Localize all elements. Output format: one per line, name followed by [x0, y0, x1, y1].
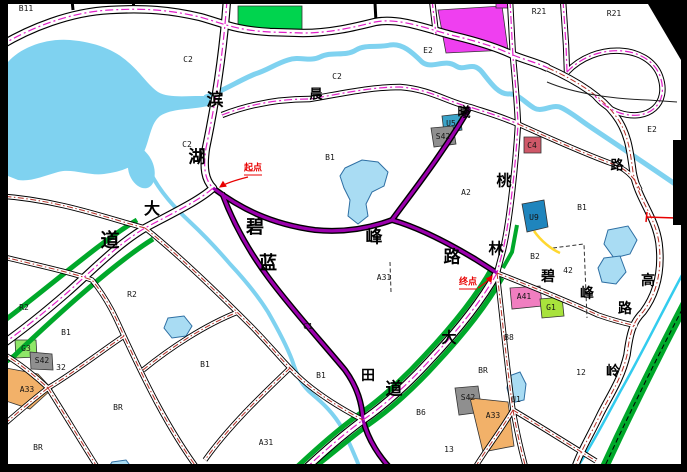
parcel-label: C1 [303, 323, 313, 331]
parcel-label: 13 [444, 446, 454, 454]
road-name-char: 路 [618, 303, 632, 317]
parcel-label: R2 [19, 304, 29, 312]
parcel-label: U1 [511, 396, 521, 404]
road-name-char: 林 [488, 243, 503, 258]
parcel-label: R2 [127, 291, 137, 299]
road-name-char: 碧 [541, 271, 555, 285]
parcel-label: B2 [530, 253, 540, 261]
parcel-label: B1 [577, 204, 587, 212]
parcel-label: B8 [504, 334, 514, 342]
parcel-label: A2 [461, 189, 471, 197]
parcel-label: B1 [200, 361, 210, 369]
parcel-label: G3 [21, 345, 31, 353]
parcel-label: E2 [423, 47, 433, 55]
planning-map[interactable]: 滨湖大道晨曦碧蓝峰路桃林大田道碧峰路高岭路 B11C2C2E2R21R21E2C… [0, 0, 687, 472]
parcel-label: A31 [377, 274, 391, 282]
road-name-char: 湖 [189, 149, 206, 166]
parcel-label: U5 [446, 120, 456, 128]
parcel-label: C4 [527, 142, 537, 150]
parcel-label: B1 [61, 329, 71, 337]
road-name-char: 道 [100, 232, 119, 251]
road-name-char: 峰 [580, 288, 594, 302]
road-name-char: 碧 [246, 218, 264, 236]
road-name-char: 曦 [457, 106, 470, 119]
parcel-label: BR [478, 367, 488, 375]
parcel-label: A31 [259, 439, 273, 447]
route-start-label: 起点 [244, 165, 262, 176]
parcel-label: R21 [532, 8, 546, 16]
parcel-label: C2 [182, 141, 192, 149]
parcel-label: G1 [546, 304, 556, 312]
road-name-char: 蓝 [259, 254, 277, 272]
road-name-char: 田 [361, 370, 375, 384]
parcel-label: 42 [563, 267, 573, 275]
parcel-label: BR [113, 404, 123, 412]
parcel-label: BR [33, 444, 43, 452]
road-name-char: 高 [641, 275, 655, 289]
road-name-char: 大 [144, 202, 160, 218]
road-name-char: 峰 [366, 229, 383, 246]
road-name-char: 路 [444, 249, 461, 266]
parcel-label: B1 [316, 372, 326, 380]
parcel-label: C2 [332, 73, 342, 81]
parcel-label: B11 [19, 5, 33, 13]
road-name-char: 滨 [207, 92, 224, 109]
road-name-char: 路 [610, 159, 623, 172]
parcel-label: R21 [607, 10, 621, 18]
parcel-label: B1 [325, 154, 335, 162]
parcel-label: U9 [529, 214, 539, 222]
route-end-label: 终点 [459, 279, 477, 290]
parcel-label: E2 [647, 126, 657, 134]
parcel-label: S42 [436, 133, 450, 141]
parcel-label: A33 [20, 386, 34, 394]
road-name-char: 桃 [496, 175, 511, 190]
parcel-label: S42 [461, 394, 475, 402]
road-name-char: 晨 [309, 88, 322, 101]
parcel-label: 12 [576, 369, 586, 377]
road-name-char: 大 [441, 332, 456, 347]
parcel-label: A41 [517, 293, 531, 301]
parcel-label: S42 [35, 357, 49, 365]
parcel-label: B6 [416, 409, 426, 417]
parcel-label: C2 [183, 56, 193, 64]
road-name-char: 岭 [606, 366, 620, 380]
road-name-char: 道 [386, 381, 403, 398]
parcel-label: 32 [56, 364, 66, 372]
parcel-label: A33 [486, 412, 500, 420]
